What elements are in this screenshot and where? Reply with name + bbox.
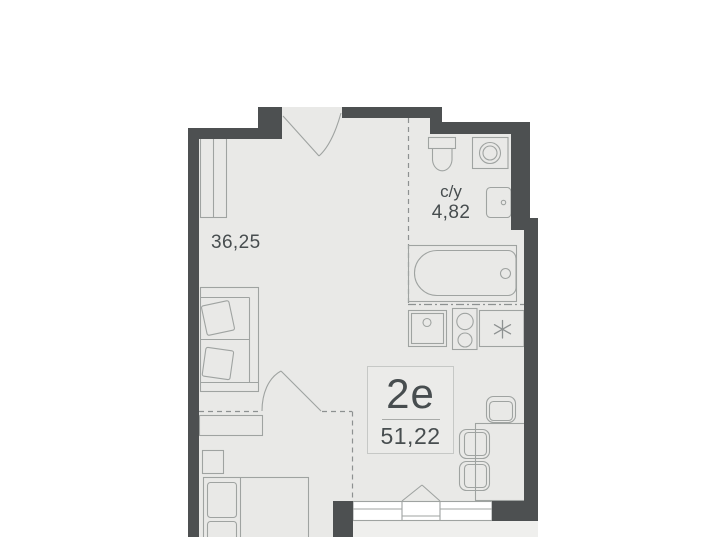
bathroom-area-label: 4,82: [414, 203, 488, 224]
living-room-area-label: 36,25: [211, 233, 261, 253]
floorplan-drawing: [0, 0, 726, 537]
floorplan-image: 36,25 с/у 4,82 2е 51,22: [0, 0, 726, 537]
bed-pillow: [208, 483, 237, 518]
apartment-floor: [188, 107, 538, 537]
bed-pillow: [208, 522, 237, 537]
sofa-pillow: [201, 300, 235, 335]
bathroom-name-label: с/у: [414, 183, 488, 202]
sofa-pillow: [202, 347, 234, 380]
unit-info-card: 2е 51,22: [367, 366, 454, 454]
unit-total-area-label: 51,22: [380, 425, 440, 448]
window: [353, 502, 492, 521]
bathroom-label: с/у 4,82: [414, 183, 488, 224]
unit-type-label: 2е: [386, 373, 435, 415]
balcony: [353, 521, 538, 537]
unit-card-divider: [382, 419, 440, 420]
